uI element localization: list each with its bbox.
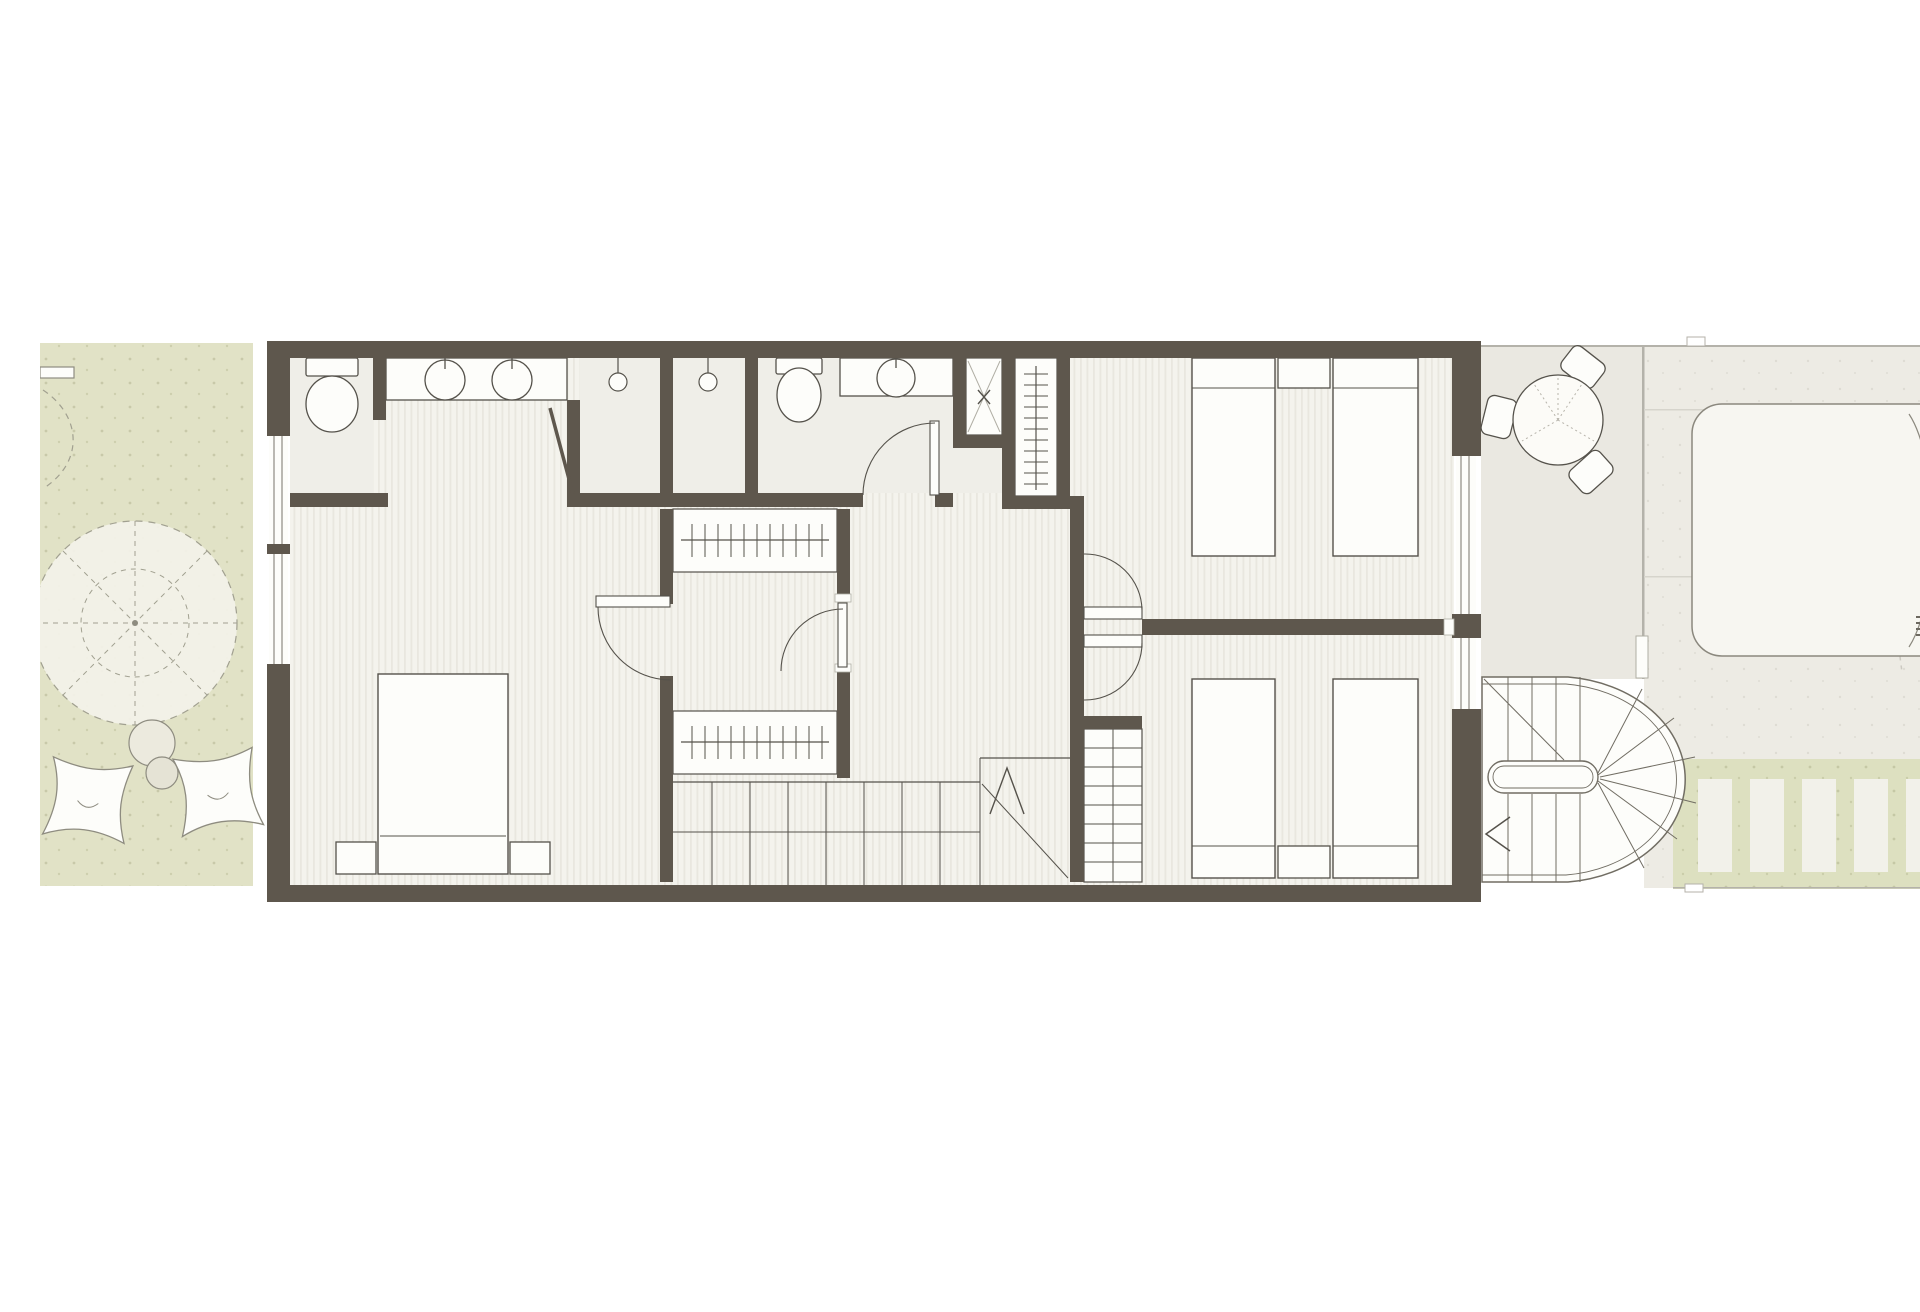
wall-bath-bottom [580, 493, 863, 507]
bed-south-room-right [1333, 679, 1418, 878]
nightstand-north-room [1278, 358, 1330, 388]
wall-shower-divider [660, 358, 673, 493]
door-leaf-hall [838, 603, 847, 667]
door-jamb-hall-upper [835, 594, 851, 602]
wall-master-stub [660, 509, 673, 604]
bathroom-nook-floor [953, 448, 1002, 493]
wall-divider-stub [1070, 619, 1084, 635]
wall-shower-bath [745, 358, 758, 493]
wall-bedroom-divider [1142, 619, 1452, 635]
nightstand-master-right [510, 842, 550, 874]
wall-exterior-left-mullion [267, 544, 290, 554]
wall-master-lower [660, 676, 673, 882]
wall-exterior-bottom [267, 885, 1481, 902]
bed-master [378, 674, 508, 874]
toilet-bowl-2 [777, 368, 821, 422]
wall-shower-tray-right [1002, 358, 1015, 509]
door-leaf-master [596, 596, 670, 607]
wall-wc-bottom [290, 493, 388, 507]
boundary-notch-top [1687, 337, 1705, 346]
paver-plank-1 [1698, 779, 1732, 872]
shower-head-a [609, 373, 627, 391]
window-right-lower [1456, 638, 1476, 709]
wall-hall-bedrooms [1070, 509, 1084, 882]
wall-closet-top [1084, 716, 1142, 729]
wall-exterior-left-upper [267, 341, 290, 436]
door-jamb-divider [1444, 619, 1454, 635]
floor-plan-svg [40, 16, 1920, 1296]
door-leaf-bedroom-south [1084, 635, 1142, 647]
wall-exterior-left-lower [267, 664, 290, 885]
boundary-notch-bottom [1685, 884, 1703, 892]
wall-exterior-top [267, 341, 1481, 358]
garden-stool-small [146, 757, 178, 789]
terrace-fence [1642, 346, 1645, 679]
wall-exterior-right-upper [1452, 341, 1481, 456]
toilet-tank-1 [306, 358, 358, 376]
door-leaf-bathroom [930, 421, 939, 495]
wall-exterior-right-stub [1452, 614, 1481, 638]
terrace-gate [1636, 636, 1648, 678]
window-left-upper [269, 436, 288, 544]
wall-hall-lower [837, 671, 850, 778]
tree-trunk [132, 620, 138, 626]
door-leaf-bedroom-north [1084, 607, 1142, 619]
paver-plank-5 [1906, 779, 1920, 872]
paver-plank-3 [1802, 779, 1836, 872]
floor-plan [40, 16, 1920, 1296]
wall-shower-tray-left [953, 358, 966, 448]
garden-wall-cap [40, 367, 74, 378]
wall-exterior-right-lower [1452, 709, 1481, 885]
wall-hall-upper [837, 509, 850, 601]
toilet-bowl-1 [306, 376, 358, 432]
window-right-upper [1456, 456, 1476, 614]
plot-boundary-bottom [1673, 887, 1920, 889]
paver-plank-2 [1750, 779, 1784, 872]
wall-wardrobe-right [1057, 358, 1070, 509]
wall-wardrobe-bottom [1002, 496, 1084, 509]
nightstand-master-left [336, 842, 376, 874]
vanity-counter-double [386, 358, 567, 400]
nightstand-south-room [1278, 846, 1330, 878]
wall-wc-stub [373, 358, 386, 420]
shower-head-b [699, 373, 717, 391]
window-left-lower [269, 554, 288, 664]
paver-plank-4 [1854, 779, 1888, 872]
car-body [1692, 404, 1920, 656]
bed-south-room-left [1192, 679, 1275, 878]
